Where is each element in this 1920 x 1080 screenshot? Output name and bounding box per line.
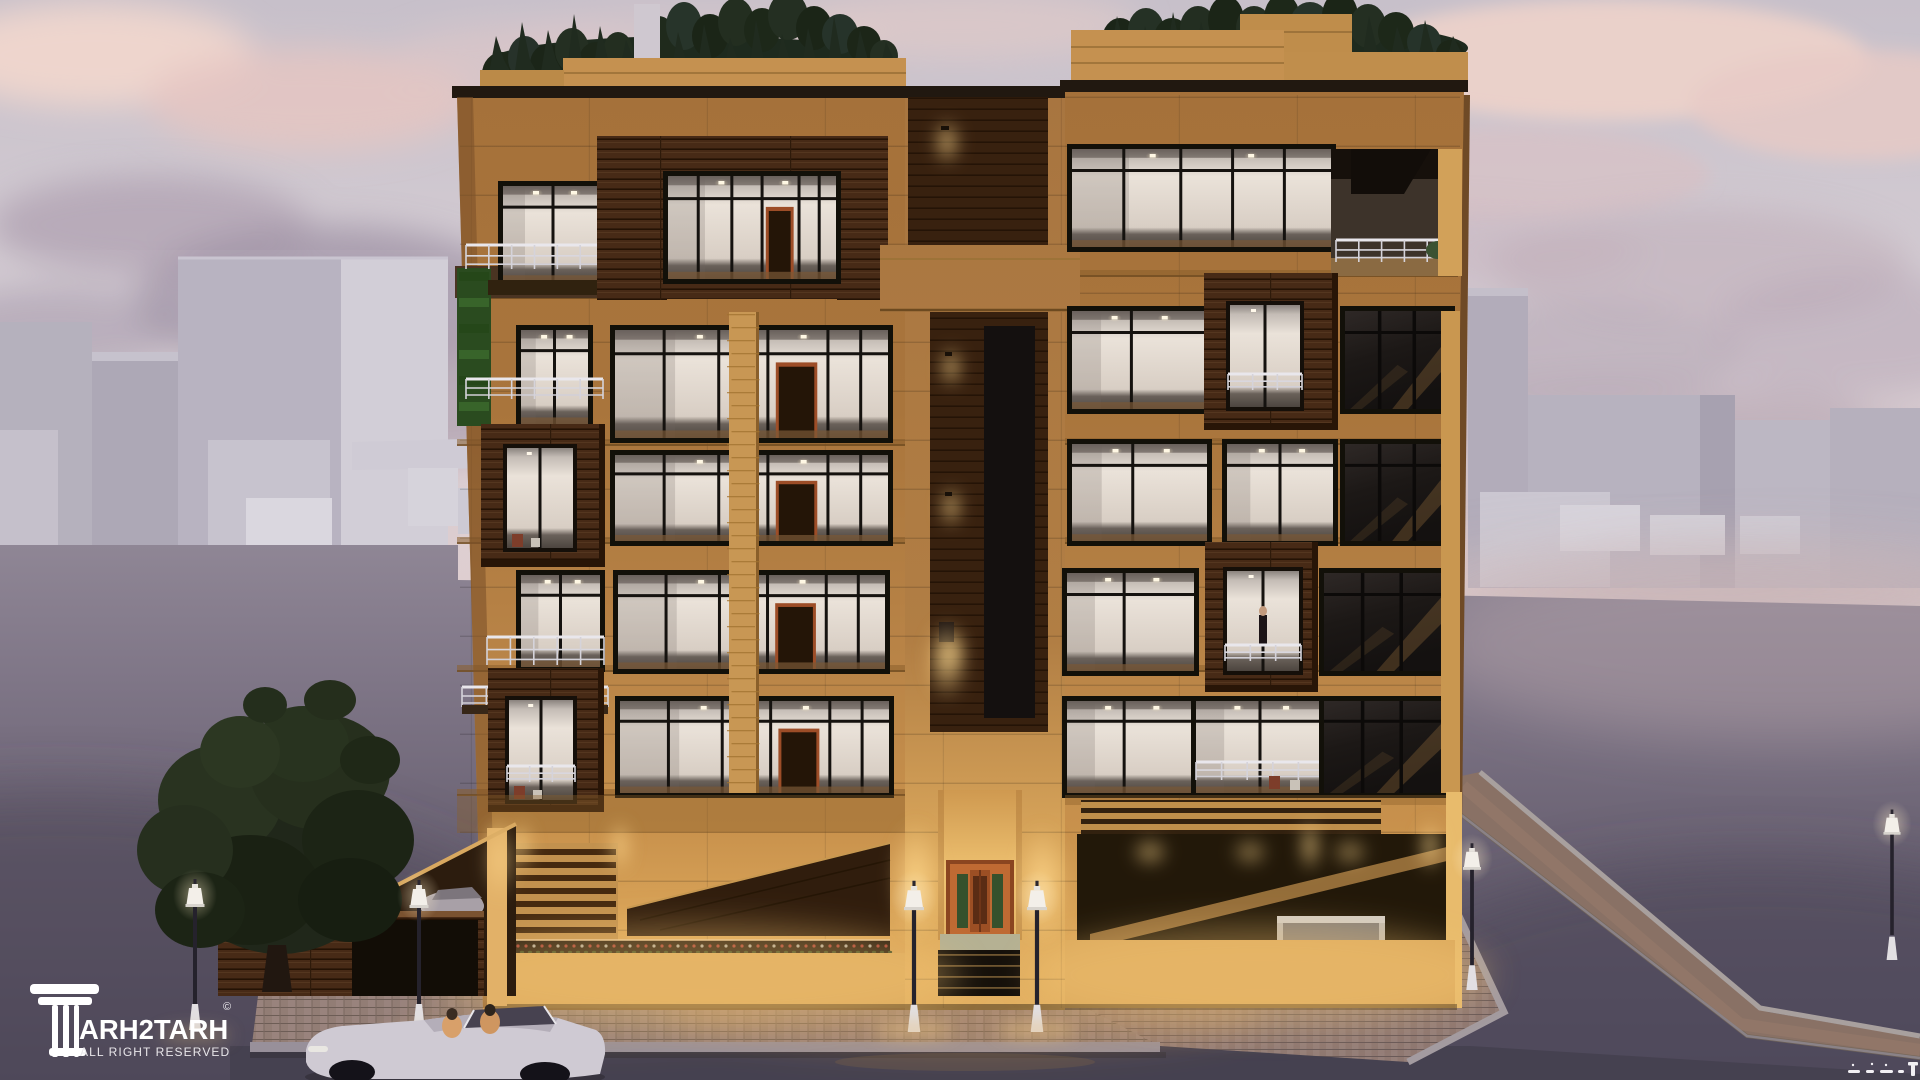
svg-text:ALL RIGHT RESERVED: ALL RIGHT RESERVED bbox=[80, 1045, 230, 1059]
svg-text:ARH2TARH: ARH2TARH bbox=[79, 1014, 228, 1045]
svg-text:©: © bbox=[223, 1001, 231, 1013]
